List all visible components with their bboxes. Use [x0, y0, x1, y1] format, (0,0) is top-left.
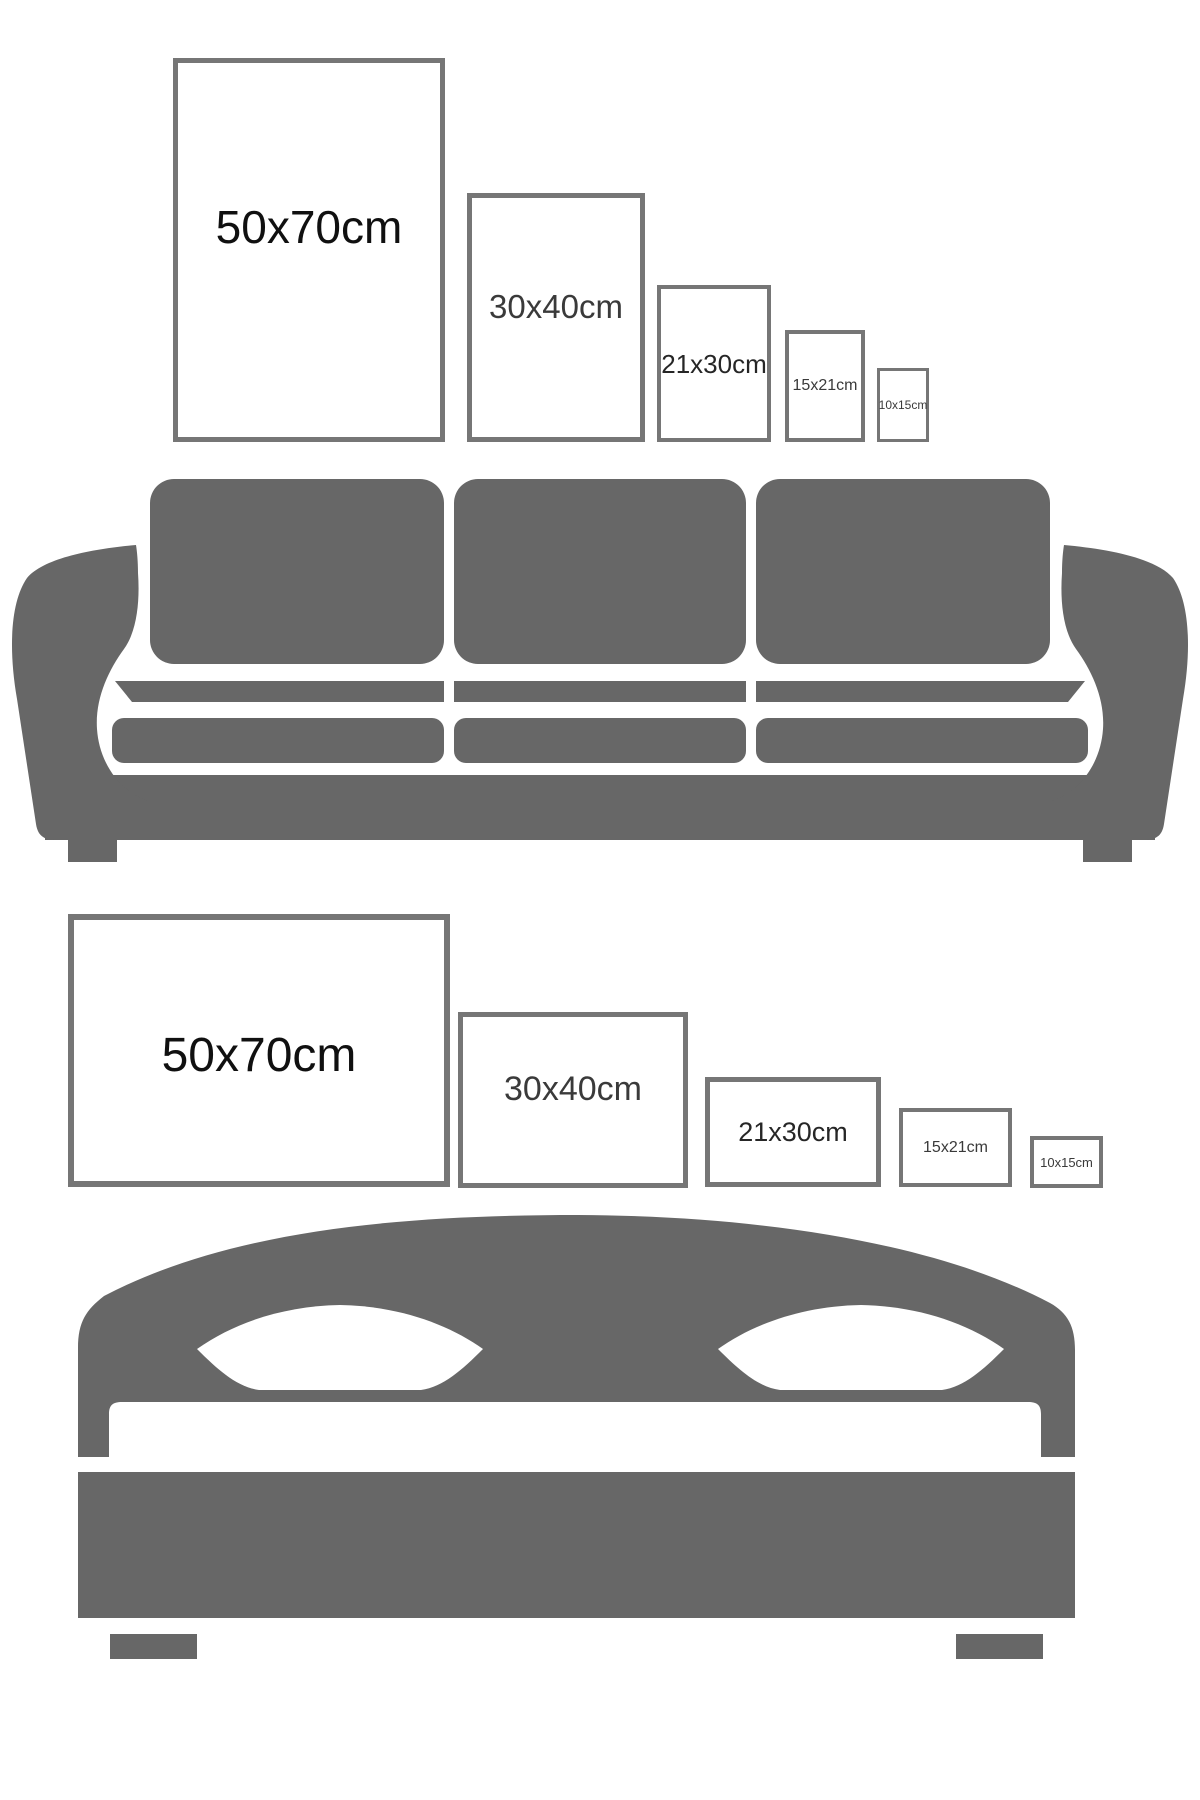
frame-15x21-landscape: 15x21cm [899, 1108, 1012, 1187]
frame-size-label: 30x40cm [489, 290, 623, 323]
frame-size-label: 50x70cm [162, 1032, 357, 1080]
frame-21x30-portrait: 21x30cm [657, 285, 771, 442]
frame-size-label: 10x15cm [879, 399, 928, 411]
frame-size-label: 15x21cm [923, 1140, 988, 1156]
frame-size-label: 30x40cm [504, 1072, 642, 1106]
frame-size-label: 10x15cm [1040, 1156, 1093, 1169]
poster-size-guide: 50x70cm 30x40cm 21x30cm 15x21cm 10x15cm [0, 0, 1200, 1800]
frame-30x40-landscape: 30x40cm [458, 1012, 688, 1188]
frame-10x15-landscape: 10x15cm [1030, 1136, 1103, 1188]
frame-size-label: 50x70cm [216, 204, 403, 250]
frame-50x70-landscape: 50x70cm [68, 914, 450, 1187]
frame-10x15-portrait: 10x15cm [877, 368, 929, 442]
frame-30x40-portrait: 30x40cm [467, 193, 645, 442]
frame-21x30-landscape: 21x30cm [705, 1077, 881, 1187]
frame-size-label: 21x30cm [738, 1119, 848, 1146]
frame-15x21-portrait: 15x21cm [785, 330, 865, 442]
bed-icon [0, 1200, 1200, 1680]
sofa-silhouette [12, 479, 1188, 862]
frame-50x70-portrait: 50x70cm [173, 58, 445, 442]
bed-silhouette [78, 1215, 1075, 1659]
frame-size-label: 15x21cm [793, 378, 858, 394]
sofa-icon [0, 440, 1200, 880]
frame-size-label: 21x30cm [661, 351, 767, 377]
